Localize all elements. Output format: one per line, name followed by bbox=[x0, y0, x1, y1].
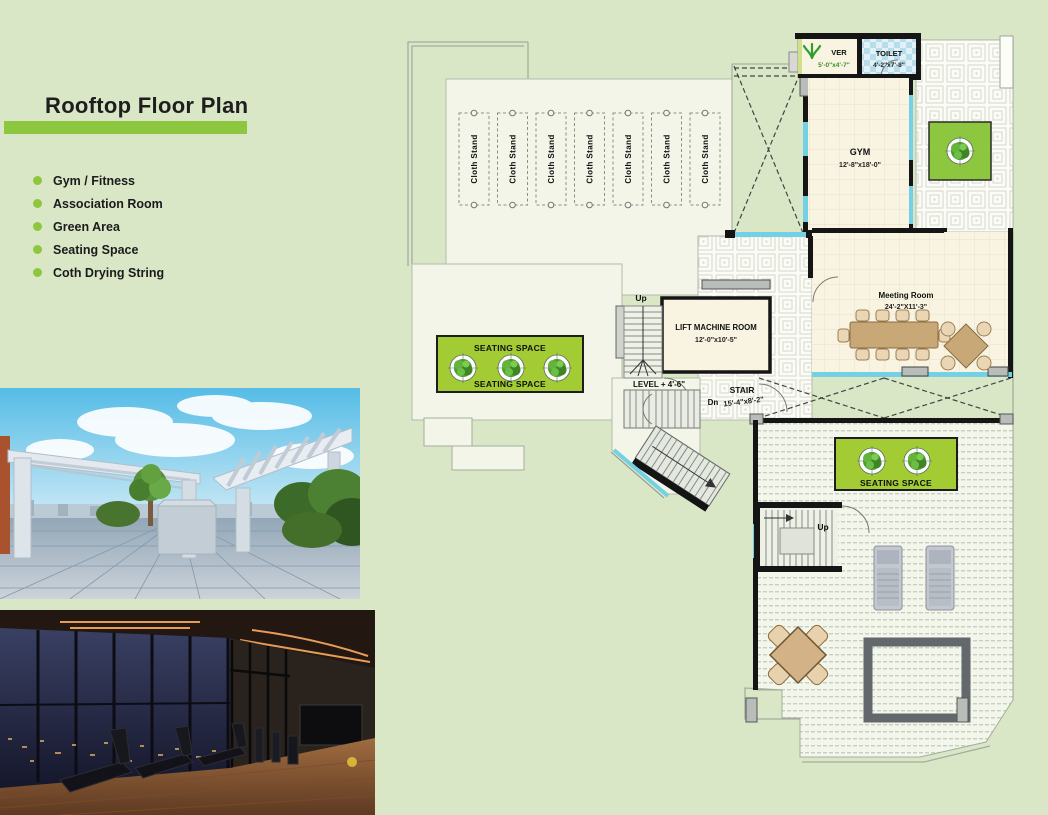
svg-text:Cloth Stand: Cloth Stand bbox=[586, 134, 595, 183]
floor-plan: Cloth Stand Cloth Stand Cloth Stand Clot… bbox=[0, 0, 1048, 815]
svg-text:STAIR: STAIR bbox=[730, 385, 755, 395]
svg-text:Cloth Stand: Cloth Stand bbox=[701, 134, 710, 183]
svg-text:Dn: Dn bbox=[708, 398, 719, 407]
level-label: LEVEL + 4'-6" bbox=[633, 380, 685, 389]
svg-text:5'-0"x4'-7": 5'-0"x4'-7" bbox=[818, 62, 850, 69]
svg-text:Cloth Stand: Cloth Stand bbox=[547, 134, 556, 183]
column bbox=[957, 698, 968, 722]
outdoor-table bbox=[766, 623, 829, 686]
svg-text:SEATING SPACE: SEATING SPACE bbox=[860, 478, 932, 488]
room-ver: VER 5'-0"x4'-7" bbox=[789, 38, 858, 77]
svg-text:Up: Up bbox=[635, 293, 646, 303]
seating-space-right: SEATING SPACE bbox=[835, 438, 957, 490]
seating-space-left: SEATING SPACE SEATING SPACE bbox=[437, 336, 583, 392]
svg-text:TOILET: TOILET bbox=[876, 49, 903, 58]
svg-text:Cloth Stand: Cloth Stand bbox=[509, 134, 518, 183]
room-meeting: Meeting Room 24'-2"X11'-3" bbox=[808, 228, 1013, 378]
green-area-planter bbox=[929, 122, 991, 180]
svg-text:Meeting Room: Meeting Room bbox=[878, 291, 933, 300]
svg-text:GYM: GYM bbox=[850, 147, 871, 157]
svg-text:VER: VER bbox=[831, 48, 847, 57]
svg-text:Cloth Stand: Cloth Stand bbox=[624, 134, 633, 183]
svg-text:LIFT MACHINE ROOM: LIFT MACHINE ROOM bbox=[675, 323, 756, 332]
void-x-area bbox=[732, 64, 811, 235]
svg-text:4'-2"x7'-8": 4'-2"x7'-8" bbox=[873, 62, 905, 69]
svg-text:Up: Up bbox=[817, 522, 828, 532]
svg-text:12'-8"x18'-0": 12'-8"x18'-0" bbox=[839, 162, 881, 169]
svg-text:Cloth Stand: Cloth Stand bbox=[663, 134, 672, 183]
svg-text:Cloth Stand: Cloth Stand bbox=[470, 134, 479, 183]
brochure-page: Rooftop Floor Plan Gym / Fitness Associa… bbox=[0, 0, 1048, 815]
square-table bbox=[941, 322, 991, 370]
column bbox=[746, 698, 757, 722]
svg-text:12'-0"x10'-5": 12'-0"x10'-5" bbox=[695, 337, 737, 344]
svg-text:SEATING SPACE: SEATING SPACE bbox=[474, 343, 546, 353]
